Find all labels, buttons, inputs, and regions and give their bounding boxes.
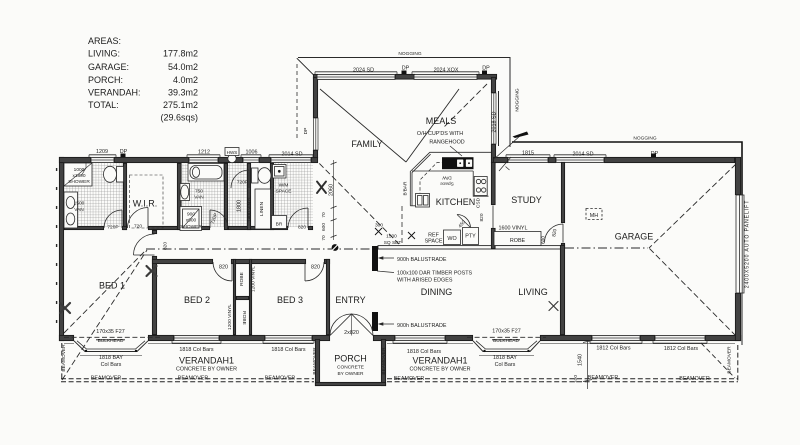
svg-text:720P: 720P: [107, 224, 118, 230]
svg-text:1006: 1006: [246, 150, 258, 156]
svg-text:39.3m2: 39.3m2: [168, 87, 198, 97]
svg-text:BEAMOVER: BEAMOVER: [61, 344, 67, 372]
svg-text:70: 70: [321, 212, 327, 218]
svg-text:PTY: PTY: [465, 234, 476, 240]
svg-text:LIVING:: LIVING:: [88, 49, 120, 59]
svg-text:CONCRETE BY OWNER: CONCRETE BY OWNER: [176, 366, 237, 372]
svg-text:DP: DP: [120, 149, 128, 155]
svg-text:1818 Col Bars: 1818 Col Bars: [271, 347, 305, 353]
svg-text:100: 100: [573, 375, 579, 383]
svg-text:820: 820: [298, 224, 306, 230]
svg-text:TOTAL:: TOTAL:: [88, 100, 119, 110]
svg-text:1818 Col Bars: 1818 Col Bars: [407, 349, 441, 355]
svg-text:BEAMOVER: BEAMOVER: [91, 376, 122, 382]
svg-text:SHOWER: SHOWER: [180, 224, 202, 230]
svg-text:DP: DP: [651, 151, 659, 157]
svg-text:x900: x900: [186, 218, 197, 224]
svg-text:GARAGE:: GARAGE:: [88, 62, 129, 72]
svg-text:300: 300: [375, 223, 383, 229]
svg-text:1500: 1500: [74, 201, 85, 207]
svg-text:W.I.R.: W.I.R.: [133, 199, 158, 209]
svg-text:DP: DP: [402, 66, 410, 72]
svg-text:CSD: CSD: [476, 197, 482, 208]
svg-text:BY OWNER: BY OWNER: [337, 371, 364, 377]
svg-text:2018 SD: 2018 SD: [492, 111, 498, 132]
svg-text:Col Bars: Col Bars: [101, 362, 122, 368]
svg-text:BED 3: BED 3: [277, 295, 303, 305]
svg-text:HWS: HWS: [227, 150, 238, 155]
svg-text:BED 1: BED 1: [99, 281, 125, 291]
svg-text:SHOWER: SHOWER: [68, 179, 90, 185]
svg-text:900: 900: [187, 212, 195, 218]
svg-text:BEAMOVER: BEAMOVER: [394, 376, 425, 382]
svg-text:BULKHEAD: BULKHEAD: [98, 338, 124, 344]
svg-text:ROBE: ROBE: [241, 311, 247, 325]
svg-text:BEAMOVER: BEAMOVER: [679, 376, 710, 382]
svg-text:VERANDAH:: VERANDAH:: [88, 87, 141, 97]
svg-text:BEAMOVER: BEAMOVER: [312, 347, 318, 375]
svg-text:STUDY: STUDY: [511, 195, 542, 205]
svg-text:BULKHEAD: BULKHEAD: [493, 338, 519, 344]
svg-text:SQ SET: SQ SET: [384, 240, 402, 246]
svg-text:820: 820: [479, 213, 485, 221]
svg-text:(29.6sqs): (29.6sqs): [160, 112, 198, 122]
svg-text:BED 2: BED 2: [184, 295, 210, 305]
svg-text:AREAS:: AREAS:: [88, 36, 121, 46]
svg-text:BEAMOVER: BEAMOVER: [588, 375, 619, 381]
svg-text:KITCHEN: KITCHEN: [436, 197, 476, 207]
svg-text:170x35 F27: 170x35 F27: [492, 329, 520, 335]
svg-text:O/H CUP'DS WITH: O/H CUP'DS WITH: [417, 131, 463, 137]
svg-text:MEALS: MEALS: [426, 116, 457, 126]
svg-text:1200 VINYL: 1200 VINYL: [227, 304, 233, 330]
svg-text:900h BALUSTRADE: 900h BALUSTRADE: [397, 257, 447, 263]
svg-text:VERANDAH1: VERANDAH1: [179, 356, 234, 366]
svg-text:D/W: D/W: [442, 175, 452, 181]
svg-text:720: 720: [134, 224, 142, 230]
svg-text:1212: 1212: [198, 150, 210, 156]
svg-text:PORCH: PORCH: [334, 354, 367, 364]
svg-text:VERANDAH1: VERANDAH1: [412, 356, 467, 366]
svg-text:1800: 1800: [237, 200, 243, 212]
svg-text:2400X5200 AUTO PANELIFT: 2400X5200 AUTO PANELIFT: [745, 200, 751, 289]
svg-text:2x820: 2x820: [344, 330, 359, 336]
svg-text:SPACE: SPACE: [276, 189, 292, 195]
svg-text:PORCH:: PORCH:: [88, 75, 123, 85]
svg-text:RANGEHOOD: RANGEHOOD: [429, 140, 464, 146]
svg-text:VAN: VAN: [74, 207, 84, 213]
svg-text:BR: BR: [276, 222, 283, 228]
svg-text:LINEN: LINEN: [259, 201, 265, 216]
svg-text:BEAMOVER: BEAMOVER: [178, 376, 209, 382]
svg-text:750: 750: [195, 189, 203, 195]
svg-text:2024 SD: 2024 SD: [353, 68, 374, 74]
svg-text:2014 SD: 2014 SD: [282, 151, 303, 157]
svg-text:GARAGE: GARAGE: [615, 232, 654, 242]
svg-text:BEAMOVER: BEAMOVER: [381, 347, 387, 375]
svg-text:Space: Space: [440, 181, 454, 187]
svg-text:820: 820: [311, 265, 320, 271]
svg-text:820: 820: [163, 242, 169, 250]
svg-text:NOGGING: NOGGING: [515, 88, 521, 111]
svg-text:820: 820: [219, 265, 228, 271]
svg-text:1400 VINYL: 1400 VINYL: [247, 196, 253, 222]
svg-text:1818 Col Bars: 1818 Col Bars: [179, 347, 213, 353]
svg-text:2024 XOX: 2024 XOX: [434, 68, 459, 74]
svg-text:FAMILY: FAMILY: [351, 139, 382, 149]
svg-text:BEAMOVER: BEAMOVER: [727, 346, 733, 374]
svg-text:2014 SD: 2014 SD: [573, 151, 594, 157]
svg-text:720P: 720P: [237, 180, 248, 186]
svg-text:2060: 2060: [329, 184, 335, 196]
svg-text:1540: 1540: [578, 354, 584, 366]
svg-text:1818 BAY: 1818 BAY: [493, 355, 517, 361]
svg-text:W/M: W/M: [279, 183, 289, 189]
svg-text:NOGGING: NOGGING: [633, 136, 656, 142]
svg-text:70: 70: [321, 235, 327, 241]
svg-text:ENTRY: ENTRY: [335, 295, 365, 305]
svg-text:DP: DP: [482, 66, 490, 72]
svg-text:SPACE: SPACE: [425, 239, 443, 245]
svg-text:MH: MH: [590, 213, 598, 219]
svg-text:54.0m2: 54.0m2: [168, 62, 198, 72]
svg-text:1500: 1500: [386, 234, 397, 240]
svg-text:1818 BAY: 1818 BAY: [99, 355, 123, 361]
svg-text:CONCRETE BY OWNER: CONCRETE BY OWNER: [410, 366, 471, 372]
svg-text:170x35 F27: 170x35 F27: [96, 329, 124, 335]
svg-text:275.1m2: 275.1m2: [163, 100, 198, 110]
svg-text:Col Bars: Col Bars: [495, 362, 516, 368]
svg-text:900h BALUSTRADE: 900h BALUSTRADE: [397, 323, 447, 329]
svg-text:x1800: x1800: [72, 173, 85, 179]
svg-text:DINING: DINING: [421, 287, 453, 297]
svg-text:LIVING: LIVING: [518, 287, 548, 297]
svg-text:CONCRETE: CONCRETE: [337, 365, 364, 371]
svg-text:VAN: VAN: [194, 195, 204, 201]
svg-text:1200 VINYL: 1200 VINYL: [251, 266, 257, 292]
svg-text:DP: DP: [303, 128, 309, 135]
svg-text:1812 Col Bars: 1812 Col Bars: [596, 346, 630, 352]
svg-text:1000: 1000: [74, 167, 85, 173]
svg-text:ROBE: ROBE: [239, 272, 245, 286]
svg-text:1815: 1815: [522, 151, 534, 157]
svg-text:NOGGING: NOGGING: [398, 51, 421, 57]
svg-text:4.0m2: 4.0m2: [173, 75, 198, 85]
svg-text:1209: 1209: [96, 149, 108, 155]
svg-text:600: 600: [321, 223, 327, 231]
svg-text:WO: WO: [447, 236, 456, 242]
svg-text:600: 600: [541, 236, 547, 244]
svg-text:1812 Col Bars: 1812 Col Bars: [664, 346, 698, 352]
svg-text:WITH ARISED EDGES: WITH ARISED EDGES: [397, 278, 453, 284]
svg-text:1600 VINYL: 1600 VINYL: [498, 226, 527, 232]
svg-text:B'BAR: B'BAR: [402, 181, 408, 196]
svg-text:BEAMOVER: BEAMOVER: [265, 376, 296, 382]
svg-text:177.8m2: 177.8m2: [163, 49, 198, 59]
svg-text:100x100 DAR TIMBER POSTS: 100x100 DAR TIMBER POSTS: [397, 271, 473, 277]
svg-text:ROBE: ROBE: [510, 238, 526, 244]
